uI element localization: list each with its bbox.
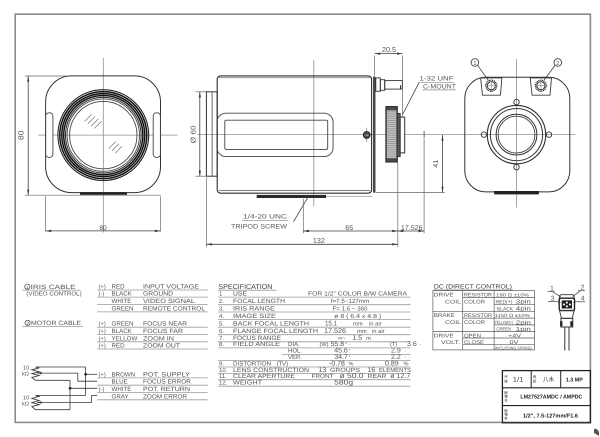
svg-text:FOCUS ERROR: FOCUS ERROR — [143, 379, 192, 386]
svg-text:FLANGE FOCAL LENGTH: FLANGE FOCAL LENGTH — [233, 328, 318, 335]
svg-text:Ø 60: Ø 60 — [189, 125, 197, 143]
svg-text:COLOR: COLOR — [464, 320, 485, 326]
svg-text:%: % — [404, 361, 409, 367]
svg-text:GROUND: GROUND — [143, 291, 174, 298]
svg-text:八木: 八木 — [543, 376, 554, 384]
svg-text:C-MOUNT: C-MOUNT — [423, 83, 456, 90]
svg-text:(VIDEO CONTROL): (VIDEO CONTROL) — [26, 290, 81, 297]
svg-text:W/CLOSING SPRING: W/CLOSING SPRING — [495, 345, 532, 350]
svg-text:POT. RETURN: POT. RETURN — [143, 386, 190, 393]
svg-text:HOL.: HOL. — [288, 348, 302, 355]
svg-text:LM27527AMDC / AMPDC: LM27527AMDC / AMPDC — [520, 393, 582, 400]
svg-text:ZOOM OUT: ZOOM OUT — [143, 343, 180, 350]
svg-text:80: 80 — [99, 225, 107, 232]
svg-text:VOLT.: VOLT. — [441, 340, 460, 346]
svg-text:ø 12.7: ø 12.7 — [390, 373, 410, 380]
svg-text:2: 2 — [26, 321, 29, 326]
svg-text:YELLOW(+): YELLOW(+) — [495, 320, 514, 325]
svg-text:11.: 11. — [219, 373, 227, 380]
svg-text:認: 認 — [533, 379, 537, 384]
svg-text:3.6: 3.6 — [407, 341, 417, 348]
svg-text:RED: RED — [112, 284, 126, 291]
svg-text:TRIPOD SCREW: TRIPOD SCREW — [231, 224, 287, 231]
svg-text:BLACK: BLACK — [112, 291, 133, 298]
svg-text:COIL: COIL — [445, 320, 461, 326]
svg-text:20.5: 20.5 — [382, 45, 396, 54]
svg-text:IRIS RANGE: IRIS RANGE — [233, 305, 275, 312]
svg-text:3.: 3. — [219, 305, 224, 312]
svg-text:132: 132 — [313, 236, 325, 245]
svg-text:mm: mm — [357, 329, 367, 335]
svg-text:VER.: VER. — [288, 354, 302, 361]
svg-text:4.: 4. — [219, 313, 224, 320]
svg-text:(W): (W) — [320, 341, 329, 348]
svg-text:BLACK: BLACK — [497, 306, 514, 312]
svg-text:FOR 1/2" COLOR B/W CAMERA: FOR 1/2" COLOR B/W CAMERA — [308, 290, 407, 297]
svg-text:1/4-20 UNC: 1/4-20 UNC — [243, 213, 288, 220]
svg-text:(-): (-) — [99, 291, 105, 298]
svg-text:1.3 MP: 1.3 MP — [566, 378, 583, 384]
svg-text:(+): (+) — [99, 328, 106, 335]
svg-text:1.5: 1.5 — [352, 335, 362, 342]
svg-text:BLACK: BLACK — [112, 328, 133, 335]
svg-text:580g: 580g — [334, 380, 353, 387]
svg-text:80: 80 — [16, 130, 25, 140]
svg-text:FIELD ANGLE: FIELD ANGLE — [233, 341, 280, 348]
svg-text:3pin: 3pin — [516, 299, 531, 306]
svg-text:度: 度 — [504, 379, 508, 384]
svg-text:ZOOM IN: ZOOM IN — [143, 335, 174, 342]
svg-text:(+): (+) — [99, 284, 106, 291]
svg-text:CLOSE: CLOSE — [464, 340, 484, 346]
svg-text:·: · — [405, 355, 407, 361]
svg-text:1150 Ω ±10%: 1150 Ω ±10% — [495, 313, 530, 318]
svg-text:VIDEO SIGNAL: VIDEO SIGNAL — [143, 298, 196, 305]
svg-text:BRAKE: BRAKE — [434, 313, 455, 319]
svg-text:kΩ: kΩ — [22, 371, 29, 378]
svg-text:17.526: 17.526 — [401, 225, 423, 232]
svg-text:DRIVE: DRIVE — [434, 292, 454, 298]
svg-text:°: ° — [349, 355, 351, 361]
svg-text:RED(+): RED(+) — [496, 299, 513, 305]
svg-text:+4V: +4V — [508, 333, 522, 339]
svg-text:°: ° — [349, 349, 351, 355]
svg-text:190 Ω ±10%: 190 Ω ±10% — [496, 292, 529, 297]
svg-text:1pin: 1pin — [516, 326, 531, 333]
svg-text:in air: in air — [369, 321, 382, 328]
svg-text:%: % — [349, 361, 354, 367]
svg-text:-0.78: -0.78 — [329, 360, 345, 367]
svg-text:GREEN: GREEN — [496, 327, 511, 333]
svg-text:名: 名 — [504, 398, 507, 402]
svg-text:FOCUS NEAR: FOCUS NEAR — [143, 321, 188, 328]
svg-text:5.: 5. — [219, 321, 224, 328]
svg-text:WHITE: WHITE — [112, 386, 132, 393]
svg-text:尺: 尺 — [504, 375, 508, 379]
svg-text:mm: mm — [353, 322, 363, 328]
svg-text:GRAY: GRAY — [112, 393, 129, 400]
svg-text:RED: RED — [112, 343, 126, 350]
svg-text:USE: USE — [233, 290, 247, 297]
svg-text:(+): (+) — [99, 371, 106, 378]
svg-text:WHITE: WHITE — [112, 298, 132, 305]
svg-text:IMAGE SIZE: IMAGE SIZE — [233, 313, 276, 320]
svg-text:(+): (+) — [99, 321, 106, 328]
svg-text:DC (DIRECT CONTROL): DC (DIRECT CONTROL) — [434, 284, 512, 291]
svg-text:GREEN: GREEN — [112, 305, 134, 312]
svg-text:12.: 12. — [219, 380, 228, 387]
svg-text:13: 13 — [319, 367, 327, 374]
svg-text:(+): (+) — [99, 343, 106, 350]
svg-text:REAR: REAR — [368, 373, 388, 380]
svg-text:65: 65 — [345, 225, 353, 232]
svg-text:RESISTOR: RESISTOR — [464, 292, 492, 298]
svg-text:OPEN: OPEN — [464, 333, 481, 339]
svg-text:承: 承 — [533, 375, 537, 379]
svg-text:7.: 7. — [219, 335, 224, 342]
svg-text:FOCAL LENGTH: FOCAL LENGTH — [233, 298, 285, 305]
svg-text:15.1: 15.1 — [325, 321, 337, 328]
svg-text:9.: 9. — [219, 360, 224, 367]
svg-text:1/1: 1/1 — [513, 377, 524, 384]
svg-text:0.89: 0.89 — [385, 360, 399, 367]
svg-text:(+): (+) — [99, 335, 106, 342]
svg-text:FOCUS FAR: FOCUS FAR — [143, 328, 184, 335]
svg-text:6.: 6. — [219, 328, 224, 335]
svg-text:41: 41 — [433, 160, 440, 168]
svg-text:1: 1 — [26, 285, 29, 290]
svg-text:4pin: 4pin — [516, 306, 531, 313]
svg-text:YELLOW: YELLOW — [112, 335, 138, 342]
svg-text:WEIGHT: WEIGHT — [233, 380, 262, 387]
svg-text:f=7.5~127mm: f=7.5~127mm — [331, 298, 370, 305]
svg-text:ZOOM ERROR: ZOOM ERROR — [143, 393, 188, 400]
svg-text:1/2", 7.5-127mm/F1.6: 1/2", 7.5-127mm/F1.6 — [523, 412, 578, 419]
svg-text:BROWN: BROWN — [112, 371, 136, 378]
svg-text:2.: 2. — [219, 298, 224, 305]
svg-text:1-32 UNF: 1-32 UNF — [420, 76, 454, 83]
svg-text:GREEN: GREEN — [112, 321, 134, 328]
svg-text:BACK FOCAL LENGTH: BACK FOCAL LENGTH — [233, 321, 309, 328]
svg-text:番: 番 — [504, 416, 508, 420]
svg-text:F= 1.6 ~ 360: F= 1.6 ~ 360 — [333, 305, 369, 312]
svg-text:DIA.: DIA. — [288, 341, 300, 348]
svg-text:MOTOR CABLE: MOTOR CABLE — [31, 320, 81, 327]
svg-text:8.: 8. — [219, 341, 224, 348]
svg-text:DRIVE: DRIVE — [434, 333, 454, 339]
svg-text:BLUE: BLUE — [112, 379, 128, 386]
svg-text:FRONT: FRONT — [312, 373, 334, 380]
svg-text:m: m — [366, 336, 371, 342]
svg-text:COIL: COIL — [445, 299, 461, 305]
svg-text:·: · — [420, 342, 422, 348]
svg-text:COLOR: COLOR — [464, 299, 485, 305]
svg-text:REMOTE CONTROL: REMOTE CONTROL — [143, 305, 206, 312]
svg-text:POT. SUPPLY: POT. SUPPLY — [143, 371, 190, 378]
svg-text:·: · — [405, 349, 407, 355]
svg-text:kΩ: kΩ — [22, 401, 29, 408]
svg-text:10.: 10. — [219, 367, 228, 374]
svg-text:16: 16 — [368, 367, 376, 374]
svg-text:in air: in air — [372, 328, 385, 335]
svg-text:(-): (-) — [99, 386, 105, 393]
svg-text:17.526: 17.526 — [324, 328, 346, 335]
svg-text:RESISTOR: RESISTOR — [464, 313, 492, 319]
svg-text:ø 8 ( 6.4 x 4.8 ): ø 8 ( 6.4 x 4.8 ) — [334, 313, 381, 320]
svg-text:2pin: 2pin — [516, 319, 531, 326]
svg-text:INPUT VOLTAGE: INPUT VOLTAGE — [143, 284, 199, 291]
